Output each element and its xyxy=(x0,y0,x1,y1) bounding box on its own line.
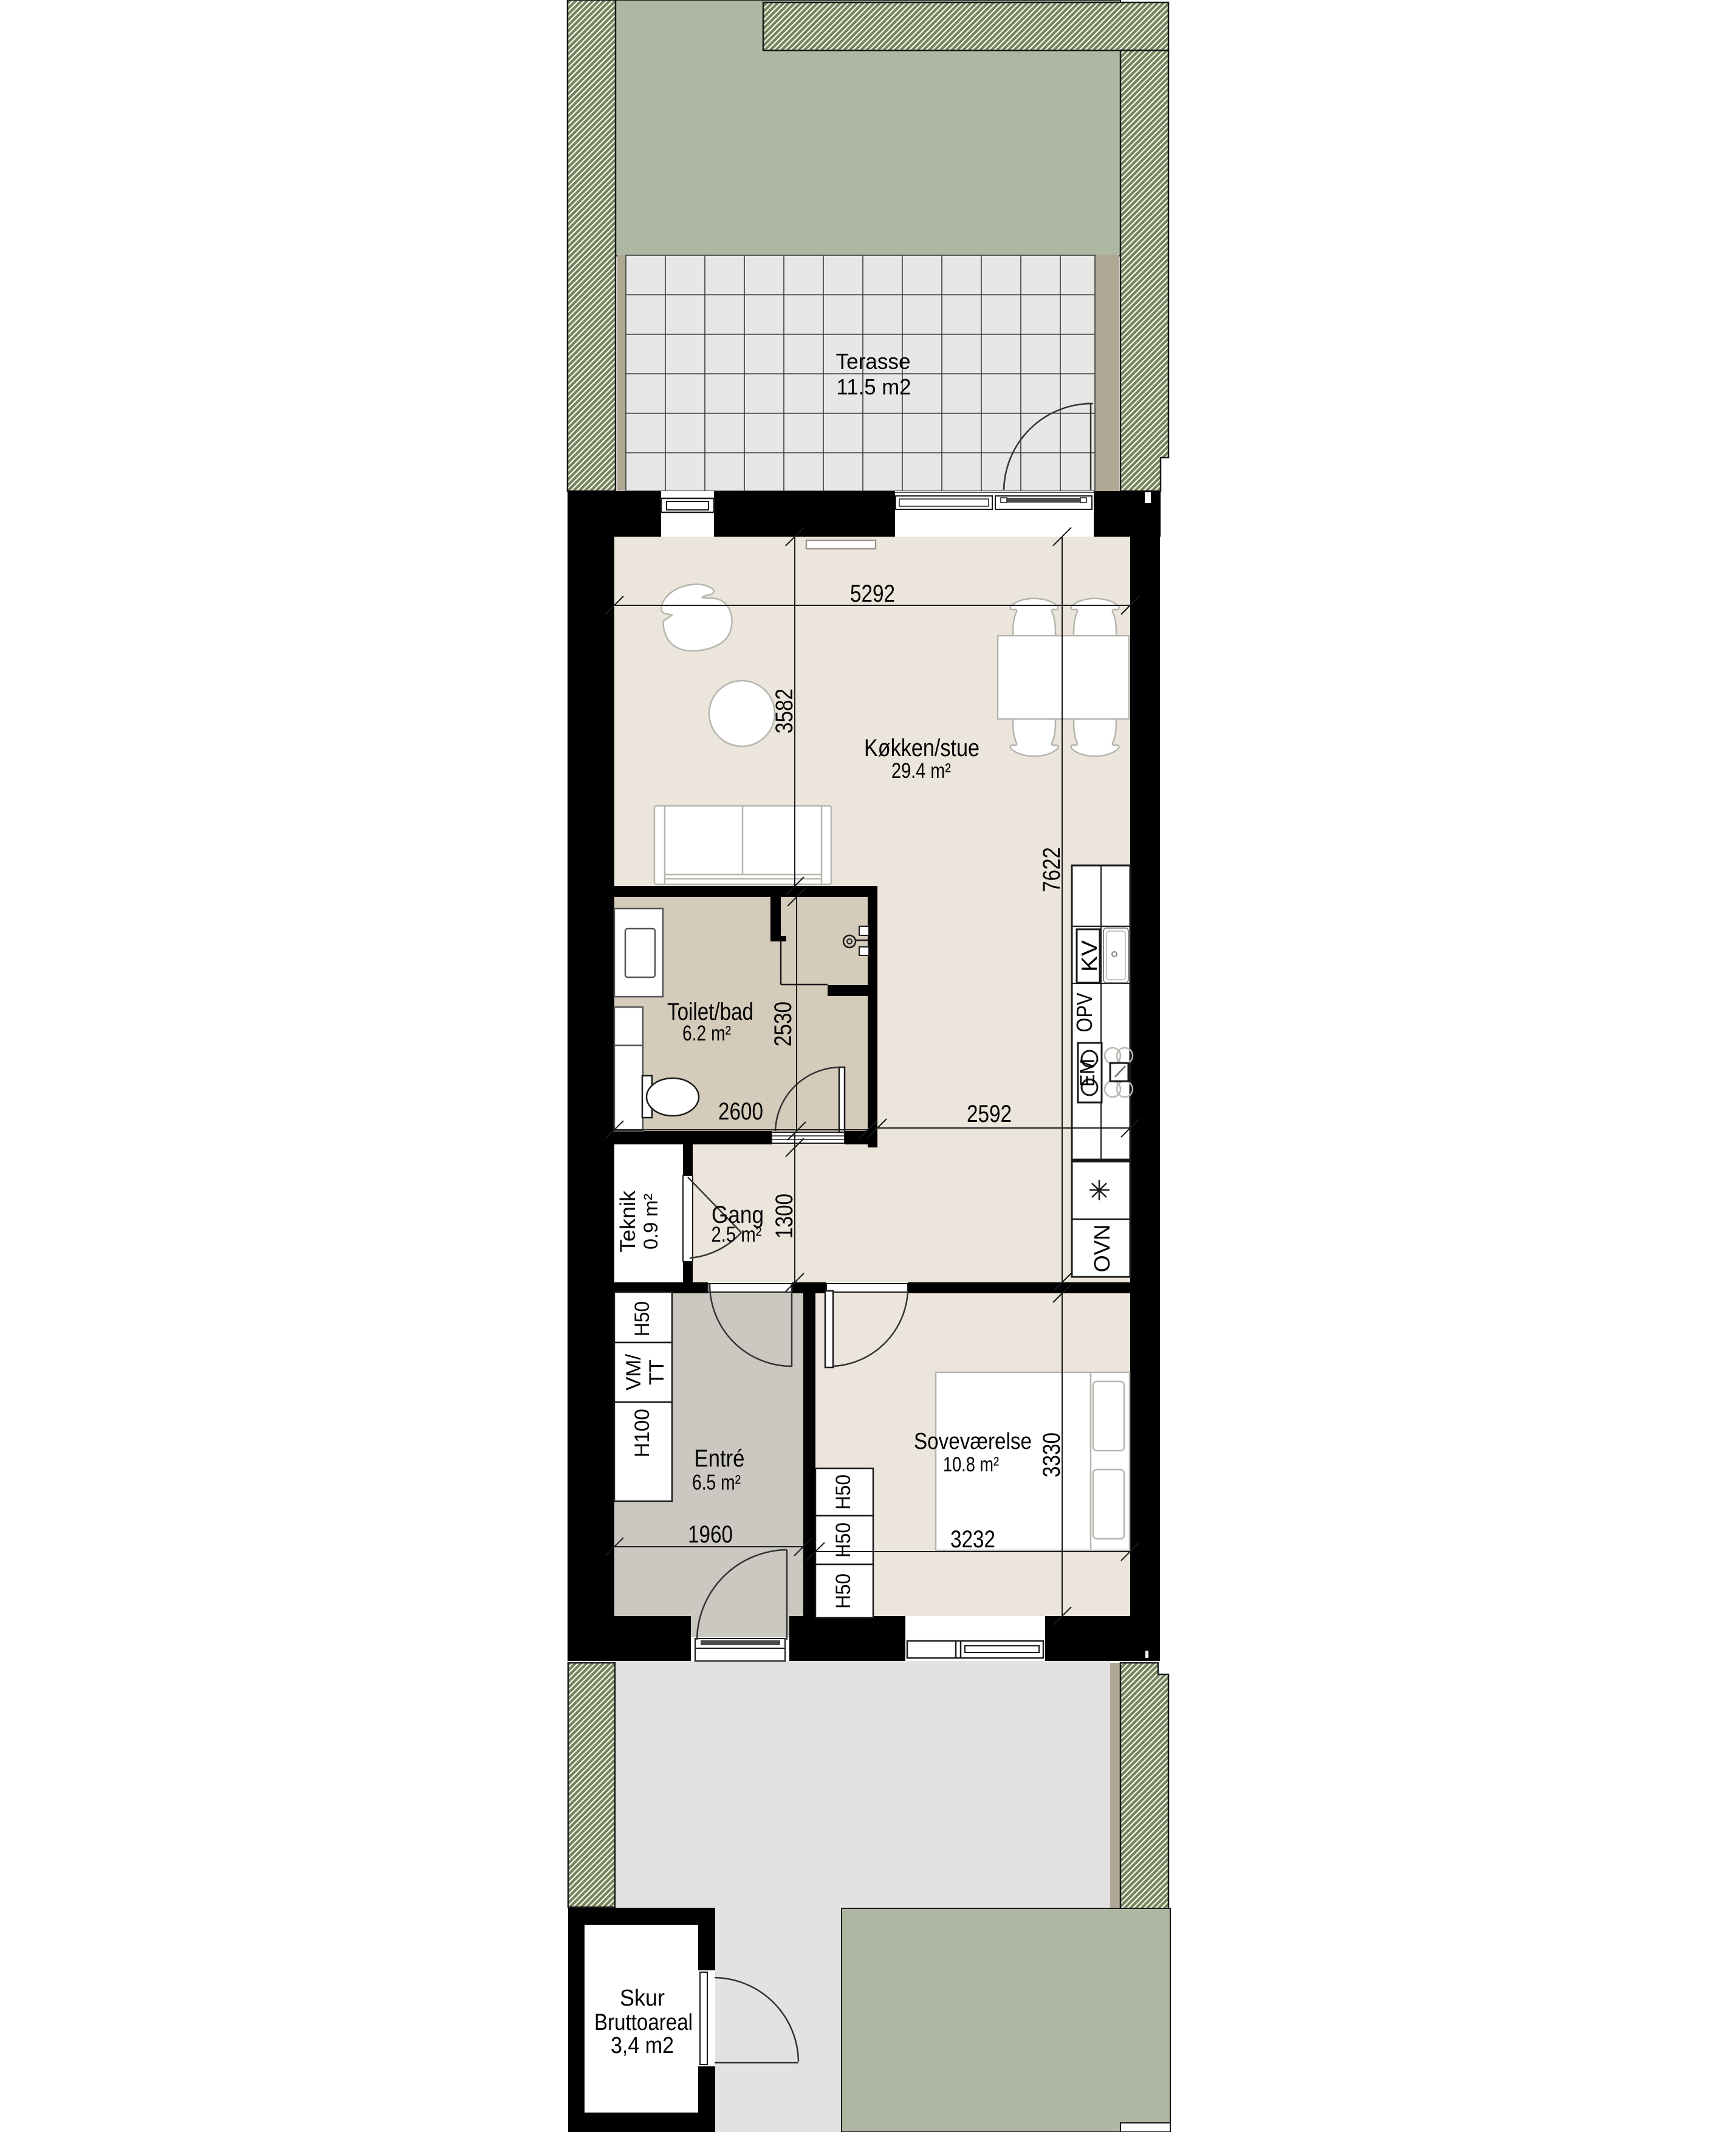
svg-text:3330: 3330 xyxy=(1038,1432,1065,1477)
svg-text:VM/: VM/ xyxy=(622,1353,645,1391)
svg-text:H50: H50 xyxy=(832,1573,855,1609)
svg-text:10.8 m²: 10.8 m² xyxy=(943,1453,999,1476)
svg-text:TT: TT xyxy=(645,1360,668,1385)
svg-text:3,4 m2: 3,4 m2 xyxy=(611,2033,674,2058)
svg-text:11.5 m2: 11.5 m2 xyxy=(837,374,911,399)
svg-text:1300: 1300 xyxy=(771,1194,798,1239)
svg-text:6.2 m²: 6.2 m² xyxy=(682,1022,731,1045)
svg-text:Køkken/stue: Køkken/stue xyxy=(864,735,980,762)
svg-text:Skur: Skur xyxy=(620,1986,665,2011)
svg-text:2530: 2530 xyxy=(770,1002,797,1047)
svg-text:H50: H50 xyxy=(832,1474,855,1510)
svg-text:2600: 2600 xyxy=(718,1098,763,1125)
svg-text:2592: 2592 xyxy=(967,1101,1012,1127)
svg-text:7622: 7622 xyxy=(1038,847,1065,892)
svg-text:1960: 1960 xyxy=(688,1521,733,1548)
svg-text:0.9 m²: 0.9 m² xyxy=(640,1194,662,1250)
svg-text:OVN: OVN xyxy=(1089,1225,1114,1273)
svg-text:H50: H50 xyxy=(631,1301,654,1336)
svg-text:Entré: Entré xyxy=(695,1445,745,1472)
svg-text:OPV: OPV xyxy=(1072,993,1097,1033)
svg-text:Terasse: Terasse xyxy=(836,349,911,374)
svg-text:Bruttoareal: Bruttoareal xyxy=(594,2010,693,2035)
svg-text:2.5 m²: 2.5 m² xyxy=(712,1223,762,1247)
svg-text:5292: 5292 xyxy=(850,580,895,607)
svg-text:3232: 3232 xyxy=(950,1526,995,1553)
svg-text:Teknik: Teknik xyxy=(616,1190,640,1253)
svg-text:Soveværelse: Soveværelse xyxy=(914,1429,1032,1454)
svg-text:KV: KV xyxy=(1077,940,1102,972)
svg-text:H50: H50 xyxy=(832,1522,855,1558)
svg-text:6.5 m²: 6.5 m² xyxy=(692,1471,741,1494)
svg-text:H100: H100 xyxy=(631,1409,654,1457)
svg-text:3582: 3582 xyxy=(771,689,798,734)
svg-text:EM: EM xyxy=(1076,1059,1099,1087)
svg-text:29.4 m²: 29.4 m² xyxy=(891,759,951,783)
